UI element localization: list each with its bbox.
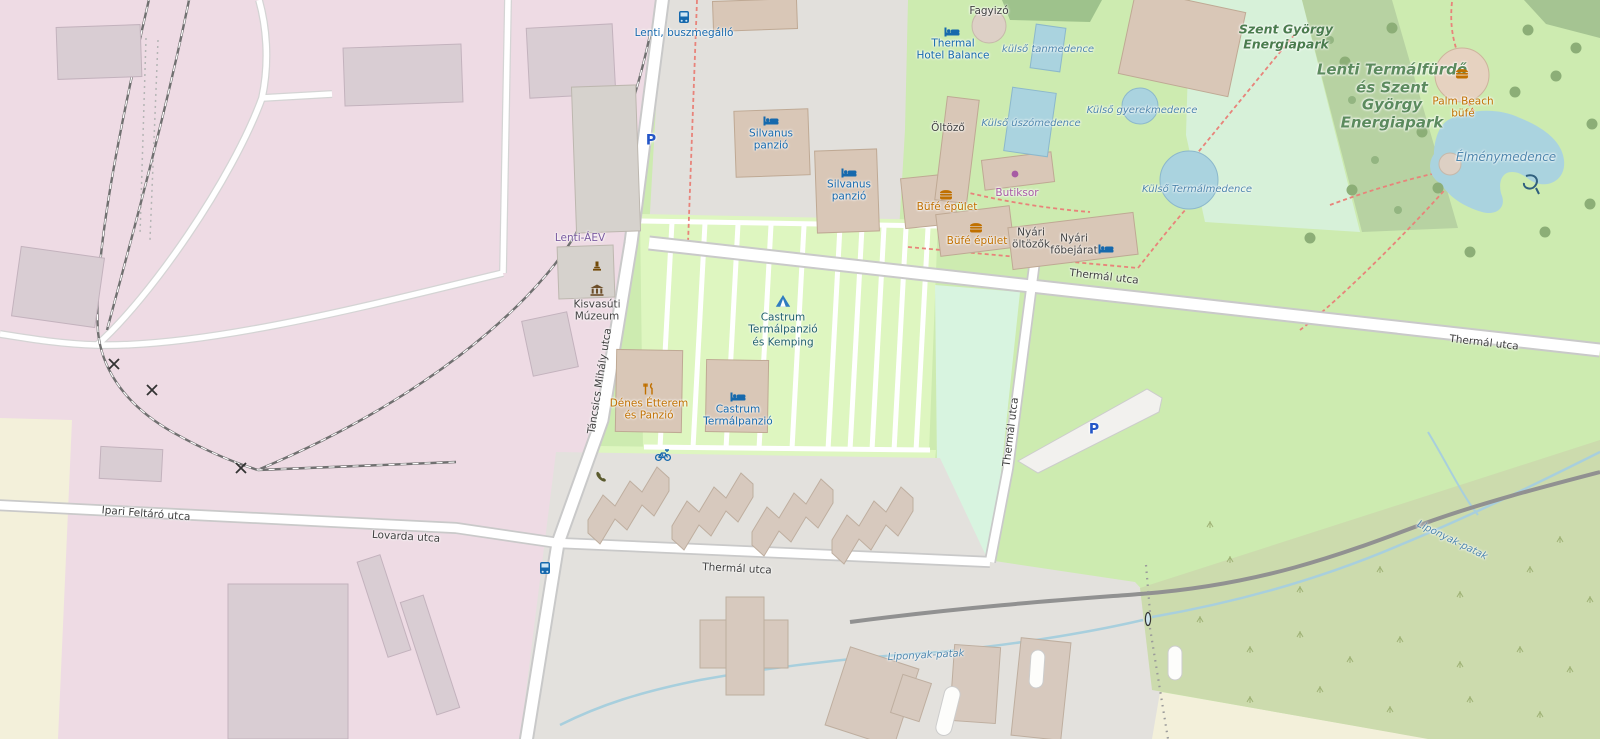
label-kulso-termalmedence: Külső Termálmedence xyxy=(1142,184,1252,196)
label-bufe-epulet-1: Büfé épület xyxy=(917,201,978,213)
bed-icon xyxy=(842,168,857,179)
label-line: panzió xyxy=(827,191,871,203)
label-lovarda-utca: Lovarda utca xyxy=(372,529,441,546)
label-line: Lenti Termálfürdő xyxy=(1317,62,1467,80)
label-line: Szent György xyxy=(1239,22,1333,37)
label-line: P xyxy=(1089,422,1099,439)
label-lenti-aev: Lenti-ÁEV xyxy=(555,232,605,244)
bike-rental-icon xyxy=(655,449,672,462)
label-oltozo: Öltöző xyxy=(931,122,965,134)
label-line: Lenti, buszmegálló xyxy=(635,27,734,39)
shop-dot-icon xyxy=(1011,170,1019,178)
label-liponyak-patak-east: Liponyak-patak xyxy=(1415,519,1489,563)
label-elmenymedence: Élménymedence xyxy=(1456,150,1556,164)
label-line: Silvanus xyxy=(749,128,793,140)
label-layer: Thermál utcaThermál utcaThermál utcaTher… xyxy=(0,0,1600,739)
label-line: és Szent xyxy=(1317,79,1467,97)
label-line: panzió xyxy=(749,140,793,152)
label-line: Öltöző xyxy=(931,122,965,134)
label-castrum-kemping: CastrumTermálpanzióés Kemping xyxy=(748,311,817,348)
label-line: Termálpanzió xyxy=(703,416,772,428)
map[interactable]: Thermál utcaThermál utcaThermál utcaTher… xyxy=(0,0,1600,739)
label-line: Ipari Feltáró utca xyxy=(101,504,191,523)
label-lenti-buszmegallo: Lenti, buszmegálló xyxy=(635,27,734,39)
label-castrum-termalpanzio: CastrumTermálpanzió xyxy=(703,404,772,429)
label-ipari-feltaro-utca: Ipari Feltáró utca xyxy=(101,504,191,523)
label-line: Dénes Étterem xyxy=(610,398,689,410)
label-thermal-utca-top: Thermál utca xyxy=(1069,267,1140,287)
bed-icon xyxy=(764,116,779,127)
label-line: külső tanmedence xyxy=(1002,44,1094,56)
label-line: Fagyizó xyxy=(969,5,1008,17)
label-line: Hotel Balance xyxy=(916,50,989,62)
label-line: Thermál utca xyxy=(1069,267,1140,287)
label-line: Thermál utca xyxy=(1449,333,1520,353)
label-line: Thermal xyxy=(916,38,989,50)
fork-knife-icon xyxy=(643,383,656,396)
label-line: Büfé épület xyxy=(947,235,1008,247)
label-line: főbejárat xyxy=(1050,245,1097,257)
bed-icon xyxy=(1099,244,1114,255)
label-line: Külső úszómedence xyxy=(981,118,1080,130)
bus-icon xyxy=(539,562,552,575)
label-line: Külső gyerekmedence xyxy=(1087,105,1198,117)
label-butiksor: Butiksor xyxy=(995,187,1038,199)
label-kisvasuti-muzeum: KisvasútiMúzeum xyxy=(573,299,620,324)
label-thermal-utca-right: Thermál utca xyxy=(1449,333,1520,353)
label-denes-etterem: Dénes Étteremés Panzió xyxy=(610,398,689,423)
phone-icon xyxy=(595,471,607,483)
label-line: Castrum xyxy=(748,311,817,323)
label-line: Thermál utca xyxy=(1001,397,1022,468)
label-line: Termálpanzió xyxy=(748,324,817,336)
bed-icon xyxy=(731,392,746,403)
label-kulso-tanmedence: külső tanmedence xyxy=(1002,44,1094,56)
label-line: György xyxy=(1317,97,1467,115)
label-line: Silvanus xyxy=(827,179,871,191)
label-line: Butiksor xyxy=(995,187,1038,199)
bus-icon xyxy=(678,11,691,24)
label-line: Energiapark xyxy=(1317,115,1467,133)
label-line: Élménymedence xyxy=(1456,150,1556,164)
label-line: Nyári xyxy=(1012,227,1050,239)
label-line: P xyxy=(646,133,656,150)
burger-icon xyxy=(939,188,953,200)
label-parking-mid: P xyxy=(1089,422,1099,439)
label-nyari-oltozok: Nyáriöltözők xyxy=(1012,227,1050,252)
label-line: öltözők xyxy=(1012,239,1050,251)
label-nyari-fobejarat: Nyárifőbejárat xyxy=(1050,233,1097,258)
tent-icon xyxy=(775,295,791,308)
label-line: Liponyak-patak xyxy=(1415,519,1489,563)
label-thermal-hotel-balance: ThermalHotel Balance xyxy=(916,38,989,63)
label-line: Nyári xyxy=(1050,233,1097,245)
label-line: Lovarda utca xyxy=(372,529,441,546)
burger-icon xyxy=(969,221,983,233)
museum-icon xyxy=(590,284,605,296)
label-silvanus-panzio-1: Silvanuspanzió xyxy=(749,128,793,153)
label-thermal-utca-bottom: Thermál utca xyxy=(702,561,772,577)
label-line: Thermál utca xyxy=(702,561,772,577)
label-thermal-utca-vertical: Thermál utca xyxy=(1001,397,1022,468)
label-liponyak-patak-south: Liponyak-patak xyxy=(887,648,964,664)
label-line: és Panzió xyxy=(610,410,689,422)
burger-icon xyxy=(1455,67,1469,79)
label-kulso-gyerekmedence: Külső gyerekmedence xyxy=(1087,105,1198,117)
label-line: Liponyak-patak xyxy=(887,648,964,664)
label-line: Büfé épület xyxy=(917,201,978,213)
label-bufe-epulet-2: Büfé épület xyxy=(947,235,1008,247)
label-silvanus-panzio-2: Silvanuspanzió xyxy=(827,179,871,204)
label-kulso-uszomedence: Külső úszómedence xyxy=(981,118,1080,130)
monument-icon xyxy=(592,261,602,272)
label-line: és Kemping xyxy=(748,336,817,348)
label-line: Castrum xyxy=(703,404,772,416)
label-parking-north: P xyxy=(646,133,656,150)
label-line: Múzeum xyxy=(573,311,620,323)
bed-icon xyxy=(945,27,960,38)
label-lenti-termalfurdo-energiapark: Lenti Termálfürdőés SzentGyörgyEnergiapa… xyxy=(1317,62,1467,133)
label-line: Energiapark xyxy=(1239,37,1333,52)
label-fagyizo: Fagyizó xyxy=(969,5,1008,17)
label-line: Lenti-ÁEV xyxy=(555,232,605,244)
label-line: Külső Termálmedence xyxy=(1142,184,1252,196)
label-szent-gyorgy-energiapark: Szent GyörgyEnergiapark xyxy=(1239,22,1333,52)
label-line: Kisvasúti xyxy=(573,299,620,311)
